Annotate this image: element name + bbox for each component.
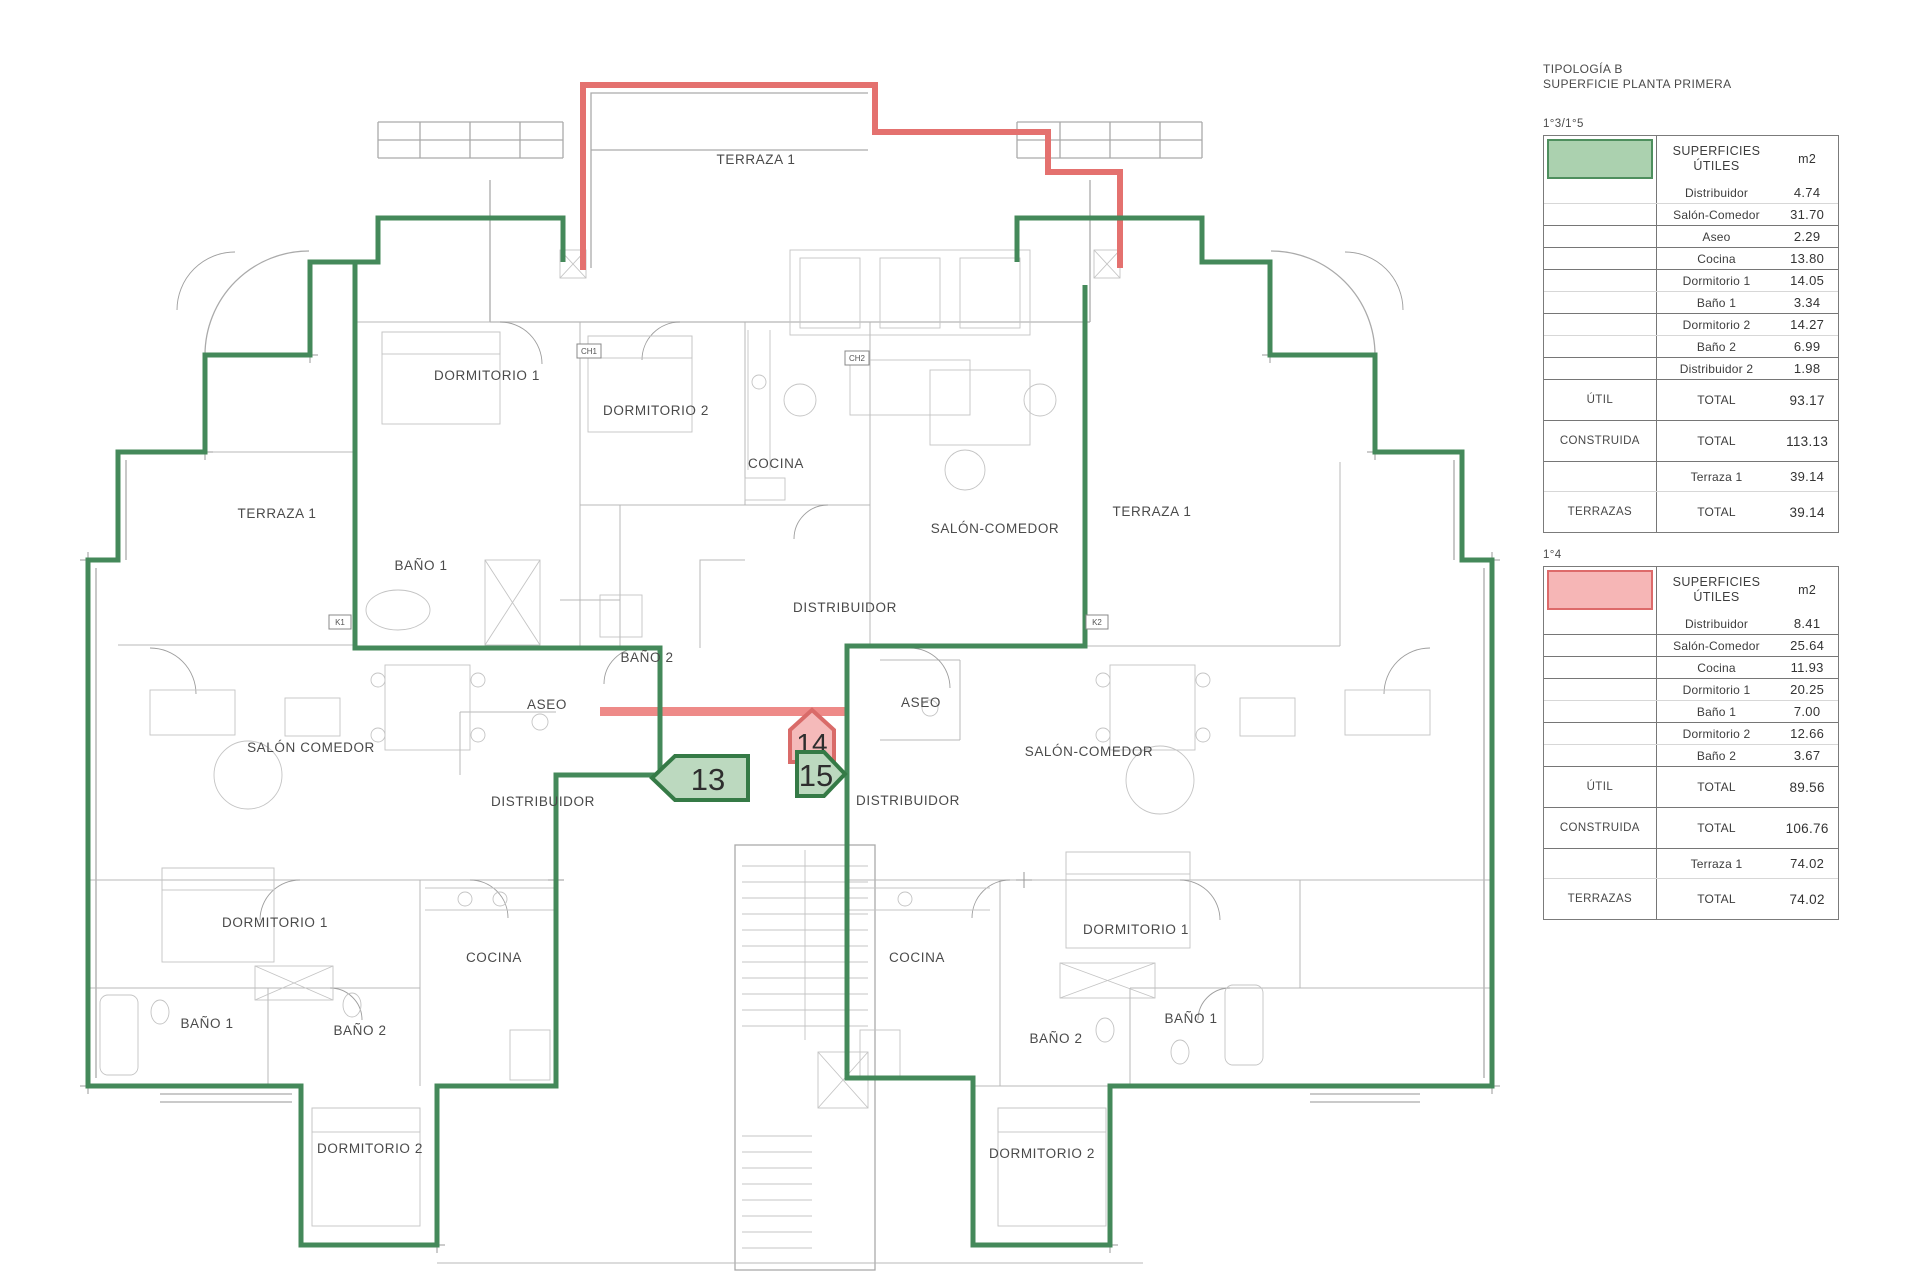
cell-room: TOTAL bbox=[1656, 380, 1777, 420]
typology-title: TIPOLOGÍA B bbox=[1543, 62, 1839, 77]
cell-room: Baño 2 bbox=[1656, 336, 1777, 357]
unit-13-outline bbox=[88, 218, 660, 1245]
cell-category bbox=[1544, 635, 1656, 656]
cell-area: 89.56 bbox=[1776, 780, 1838, 795]
table-row: Salón-Comedor31.70 bbox=[1544, 203, 1838, 225]
marker-k2: K2 bbox=[1092, 618, 1102, 627]
cell-category bbox=[1544, 314, 1656, 335]
cell-category bbox=[1544, 358, 1656, 379]
cell-area: 93.17 bbox=[1776, 393, 1838, 408]
cell-room: Dormitorio 2 bbox=[1656, 723, 1777, 744]
cell-area: 31.70 bbox=[1776, 207, 1838, 222]
table-row-util-total: ÚTILTOTAL89.56 bbox=[1544, 766, 1838, 807]
room-label-salon-right: SALÓN-COMEDOR bbox=[1025, 744, 1154, 759]
cell-room: Baño 1 bbox=[1656, 292, 1777, 313]
cell-room: Distribuidor 2 bbox=[1656, 358, 1777, 379]
marker-ch1: CH1 bbox=[581, 347, 598, 356]
table-row: Terraza 174.02 bbox=[1544, 848, 1838, 878]
table-row: Dormitorio 120.25 bbox=[1544, 678, 1838, 700]
table-row: Dormitorio 114.05 bbox=[1544, 269, 1838, 291]
cell-room: Salón-Comedor bbox=[1656, 204, 1777, 225]
table-row: Baño 13.34 bbox=[1544, 291, 1838, 313]
cell-room: Baño 2 bbox=[1656, 745, 1777, 766]
room-label-dormitorio2-top: DORMITORIO 2 bbox=[603, 403, 709, 418]
room-label-dormitorio1-top: DORMITORIO 1 bbox=[434, 368, 540, 383]
cell-room: TOTAL bbox=[1656, 492, 1777, 532]
cell-room: Dormitorio 1 bbox=[1656, 679, 1777, 700]
cell-area: 39.14 bbox=[1776, 469, 1838, 484]
cell-room: Cocina bbox=[1656, 248, 1777, 269]
room-label-bano2-bl: BAÑO 2 bbox=[333, 1023, 386, 1038]
cell-category bbox=[1544, 701, 1656, 722]
room-label-dormitorio2-br: DORMITORIO 2 bbox=[989, 1146, 1095, 1161]
cell-area: 74.02 bbox=[1776, 892, 1838, 907]
cell-area: 106.76 bbox=[1776, 821, 1838, 836]
cell-category bbox=[1544, 292, 1656, 313]
cell-category: TERRAZAS bbox=[1544, 879, 1656, 919]
cell-category: CONSTRUIDA bbox=[1544, 808, 1656, 848]
cell-category bbox=[1544, 849, 1656, 878]
room-label-bano1-br: BAÑO 1 bbox=[1164, 1011, 1217, 1026]
table-row: Cocina13.80 bbox=[1544, 247, 1838, 269]
table-row: Terraza 139.14 bbox=[1544, 461, 1838, 491]
unit-badge-13: 13 bbox=[652, 756, 748, 800]
unit-badge-15: 15 bbox=[797, 752, 845, 796]
cell-room: Cocina bbox=[1656, 657, 1777, 678]
room-label-distribuidor-top: DISTRIBUIDOR bbox=[793, 600, 897, 615]
table-row: Dormitorio 212.66 bbox=[1544, 722, 1838, 744]
unit-14-color-swatch bbox=[1547, 570, 1653, 610]
table-row: Distribuidor4.74 bbox=[1544, 182, 1838, 203]
room-label-dormitorio1-br: DORMITORIO 1 bbox=[1083, 922, 1189, 937]
cell-area: 11.93 bbox=[1776, 660, 1838, 675]
cell-room: Aseo bbox=[1656, 226, 1777, 247]
table-row: Aseo2.29 bbox=[1544, 225, 1838, 247]
cell-category bbox=[1544, 462, 1656, 491]
room-label-cocina-br: COCINA bbox=[889, 950, 945, 965]
cell-area: 3.34 bbox=[1776, 295, 1838, 310]
cell-room: Baño 1 bbox=[1656, 701, 1777, 722]
cell-category bbox=[1544, 657, 1656, 678]
unit-label-13-15: 1°3/1°5 bbox=[1543, 118, 1839, 130]
table-row-construida-total: CONSTRUIDATOTAL113.13 bbox=[1544, 420, 1838, 461]
table-row: Baño 17.00 bbox=[1544, 700, 1838, 722]
table-row: Cocina11.93 bbox=[1544, 656, 1838, 678]
cell-area: 8.41 bbox=[1776, 616, 1838, 631]
table-row: Baño 23.67 bbox=[1544, 744, 1838, 766]
cell-category bbox=[1544, 613, 1656, 634]
table-header-row: SUPERFICIES ÚTILES m2 bbox=[1544, 136, 1838, 182]
room-labels: TERRAZA 1 DORMITORIO 1 DORMITORIO 2 COCI… bbox=[180, 152, 1217, 1161]
cell-room: Salón-Comedor bbox=[1656, 635, 1777, 656]
cell-category bbox=[1544, 336, 1656, 357]
room-label-terraza-left: TERRAZA 1 bbox=[238, 506, 317, 521]
room-label-terraza-right: TERRAZA 1 bbox=[1113, 504, 1192, 519]
cell-room: Distribuidor bbox=[1656, 613, 1777, 634]
cell-room: Distribuidor bbox=[1656, 182, 1777, 203]
cell-room: Terraza 1 bbox=[1656, 462, 1777, 491]
cell-category: TERRAZAS bbox=[1544, 492, 1656, 532]
cell-area: 113.13 bbox=[1776, 434, 1838, 449]
room-label-salon-left: SALÓN COMEDOR bbox=[247, 740, 375, 755]
cell-area: 3.67 bbox=[1776, 748, 1838, 763]
unit-15-outline bbox=[847, 218, 1492, 1245]
unit-14-swatch-cell bbox=[1544, 567, 1656, 613]
room-label-salon-top: SALÓN-COMEDOR bbox=[931, 521, 1060, 536]
room-label-dormitorio1-bl: DORMITORIO 1 bbox=[222, 915, 328, 930]
cell-room: TOTAL bbox=[1656, 879, 1777, 919]
area-table-units-13-15: SUPERFICIES ÚTILES m2 Distribuidor4.74 S… bbox=[1543, 135, 1839, 533]
room-label-distribuidor-left: DISTRIBUIDOR bbox=[491, 794, 595, 809]
surface-subtitle: SUPERFICIE PLANTA PRIMERA bbox=[1543, 77, 1839, 92]
area-table-unit-14: SUPERFICIES ÚTILES m2 Distribuidor8.41 S… bbox=[1543, 566, 1839, 920]
dimension-ticks bbox=[80, 347, 1500, 1253]
cell-area: 74.02 bbox=[1776, 856, 1838, 871]
room-label-bano1-top: BAÑO 1 bbox=[394, 558, 447, 573]
table-row-terrazas-total: TERRAZASTOTAL39.14 bbox=[1544, 491, 1838, 532]
cell-category: ÚTIL bbox=[1544, 380, 1656, 420]
table-header-row: SUPERFICIES ÚTILES m2 bbox=[1544, 567, 1838, 613]
info-panel: TIPOLOGÍA B SUPERFICIE PLANTA PRIMERA 1°… bbox=[1543, 62, 1839, 920]
cell-category bbox=[1544, 182, 1656, 203]
cell-category bbox=[1544, 204, 1656, 225]
unit-badge-13-number: 13 bbox=[691, 762, 725, 797]
cell-area: 13.80 bbox=[1776, 251, 1838, 266]
room-label-cocina-bl: COCINA bbox=[466, 950, 522, 965]
header-title-cell: SUPERFICIES ÚTILES bbox=[1656, 136, 1777, 182]
cell-category bbox=[1544, 745, 1656, 766]
cell-area: 25.64 bbox=[1776, 638, 1838, 653]
room-label-bano1-bl: BAÑO 1 bbox=[180, 1016, 233, 1031]
cell-category: CONSTRUIDA bbox=[1544, 421, 1656, 461]
room-label-distribuidor-right: DISTRIBUIDOR bbox=[856, 793, 960, 808]
room-label-dormitorio2-bl: DORMITORIO 2 bbox=[317, 1141, 423, 1156]
cell-room: Dormitorio 1 bbox=[1656, 270, 1777, 291]
unit-13-15-swatch-cell bbox=[1544, 136, 1656, 182]
table-row: Baño 26.99 bbox=[1544, 335, 1838, 357]
cell-room: TOTAL bbox=[1656, 767, 1777, 807]
room-label-bano2-br: BAÑO 2 bbox=[1029, 1031, 1082, 1046]
cell-area: 14.27 bbox=[1776, 317, 1838, 332]
cell-area: 39.14 bbox=[1776, 505, 1838, 520]
room-label-aseo-right: ASEO bbox=[901, 695, 941, 710]
room-label-aseo-left: ASEO bbox=[527, 697, 567, 712]
unit-13-15-color-swatch bbox=[1547, 139, 1653, 179]
key-markers: K1 K2 CH1 CH2 bbox=[329, 344, 1108, 629]
table-row-terrazas-total: TERRAZASTOTAL74.02 bbox=[1544, 878, 1838, 919]
cell-room: TOTAL bbox=[1656, 421, 1777, 461]
header-unit-cell: m2 bbox=[1776, 583, 1838, 597]
cell-area: 12.66 bbox=[1776, 726, 1838, 741]
cell-area: 7.00 bbox=[1776, 704, 1838, 719]
marker-k1: K1 bbox=[335, 618, 345, 627]
cell-area: 1.98 bbox=[1776, 361, 1838, 376]
cell-category bbox=[1544, 226, 1656, 247]
header-unit-cell: m2 bbox=[1776, 152, 1838, 166]
unit-label-14: 1°4 bbox=[1543, 549, 1839, 561]
table-row: Distribuidor 21.98 bbox=[1544, 357, 1838, 379]
table-row: Salón-Comedor25.64 bbox=[1544, 634, 1838, 656]
header-title-cell: SUPERFICIES ÚTILES bbox=[1656, 567, 1777, 613]
marker-ch2: CH2 bbox=[849, 354, 866, 363]
table-row: Dormitorio 214.27 bbox=[1544, 313, 1838, 335]
table-row-util-total: ÚTILTOTAL93.17 bbox=[1544, 379, 1838, 420]
cell-area: 14.05 bbox=[1776, 273, 1838, 288]
room-label-bano2-top: BAÑO 2 bbox=[620, 650, 673, 665]
cell-category bbox=[1544, 679, 1656, 700]
cell-room: Dormitorio 2 bbox=[1656, 314, 1777, 335]
room-label-cocina-top: COCINA bbox=[748, 456, 804, 471]
cell-room: Terraza 1 bbox=[1656, 849, 1777, 878]
table-row: Distribuidor8.41 bbox=[1544, 613, 1838, 634]
cell-area: 6.99 bbox=[1776, 339, 1838, 354]
cell-area: 2.29 bbox=[1776, 229, 1838, 244]
cell-category: ÚTIL bbox=[1544, 767, 1656, 807]
unit-badge-15-number: 15 bbox=[799, 758, 833, 793]
cell-category bbox=[1544, 248, 1656, 269]
cell-room: TOTAL bbox=[1656, 808, 1777, 848]
cell-category bbox=[1544, 723, 1656, 744]
table-row-construida-total: CONSTRUIDATOTAL106.76 bbox=[1544, 807, 1838, 848]
cell-category bbox=[1544, 270, 1656, 291]
cell-area: 4.74 bbox=[1776, 185, 1838, 200]
room-label-terraza-top: TERRAZA 1 bbox=[717, 152, 796, 167]
cell-area: 20.25 bbox=[1776, 682, 1838, 697]
unit-14-outline bbox=[583, 85, 1120, 716]
